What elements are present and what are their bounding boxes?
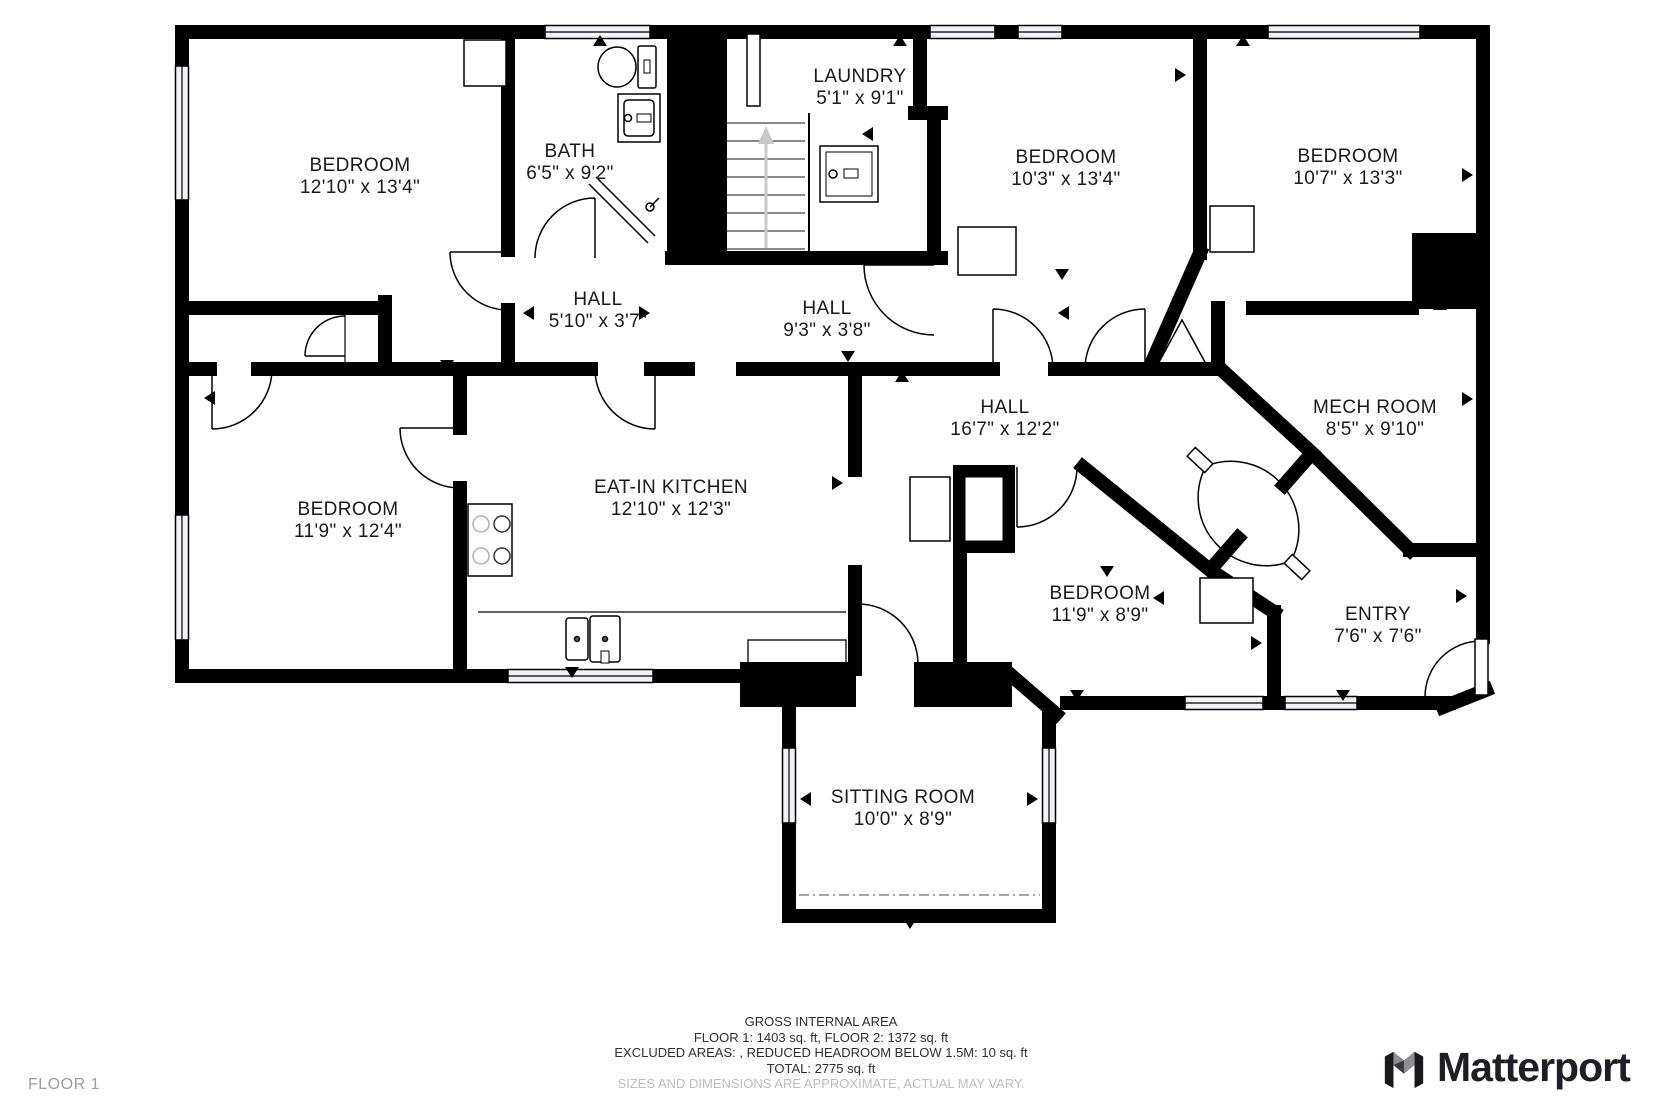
floor-areas: FLOOR 1: 1403 sq. ft, FLOOR 2: 1372 sq. …	[614, 1030, 1027, 1046]
room-name: HALL	[950, 397, 1059, 419]
area-summary: GROSS INTERNAL AREA FLOOR 1: 1403 sq. ft…	[614, 1014, 1027, 1092]
room-label-entry: ENTRY7'6" x 7'6"	[1334, 604, 1421, 648]
room-dims: 12'10" x 13'4"	[300, 177, 420, 199]
room-dims: 10'0" x 8'9"	[831, 809, 975, 831]
room-name: BEDROOM	[1293, 146, 1402, 168]
room-label-bedroom-2: BEDROOM11'9" x 12'4"	[294, 499, 402, 543]
room-dims: 6'5" x 9'2"	[526, 163, 613, 185]
kitchen-counter	[466, 576, 846, 668]
excluded-areas: EXCLUDED AREAS: , REDUCED HEADROOM BELOW…	[614, 1045, 1027, 1061]
door-entry-leaf	[1475, 639, 1488, 695]
room-label-bedroom-1: BEDROOM12'10" x 13'4"	[300, 155, 420, 199]
hall-cabinet-box	[910, 477, 950, 541]
room-label-bath: BATH6'5" x 9'2"	[526, 141, 613, 185]
door-bedroom-2	[212, 369, 272, 429]
room-name: LAUNDRY	[813, 66, 906, 88]
floor-indicator: FLOOR 1	[28, 1076, 100, 1094]
closet-chase-inner	[965, 477, 1003, 541]
vestibule-wall-right	[914, 662, 1012, 707]
closet-box-bed3	[958, 227, 1016, 275]
door-bedroom-4	[1017, 467, 1077, 527]
room-name: EAT-IN KITCHEN	[594, 477, 748, 499]
room-name: BATH	[526, 141, 613, 163]
door-jamb	[1187, 447, 1213, 472]
room-dims: 12'10" x 12'3"	[594, 499, 748, 521]
interior-walls	[182, 32, 1483, 703]
room-name: ENTRY	[1334, 604, 1421, 626]
staircase	[727, 34, 809, 258]
door-sitting-room	[858, 604, 918, 664]
room-dims: 10'3" x 13'4"	[1011, 169, 1120, 191]
room-name: HALL	[783, 298, 870, 320]
floorplan-drawing	[0, 0, 1680, 1120]
room-label-hall-a: HALL5'10" x 3'7"	[549, 289, 647, 333]
pocket-door	[747, 34, 760, 106]
matterport-wordmark: Matterport	[1437, 1044, 1630, 1091]
door-hall-b	[864, 265, 934, 335]
room-name: SITTING ROOM	[831, 787, 975, 809]
matterport-logo-icon	[1381, 1045, 1427, 1091]
room-dims: 11'9" x 8'9"	[1050, 605, 1151, 627]
washer-icon	[820, 146, 878, 202]
room-label-hall-b: HALL9'3" x 3'8"	[783, 298, 870, 342]
floorplan-page: BEDROOM12'10" x 13'4" BATH6'5" x 9'2" LA…	[0, 0, 1680, 1120]
room-label-sitting-room: SITTING ROOM10'0" x 8'9"	[831, 787, 975, 831]
door-kitchen-top	[595, 369, 655, 429]
stair-up-arrowhead	[758, 126, 774, 144]
door-closet	[1085, 309, 1145, 369]
total-area: TOTAL: 2775 sq. ft	[614, 1061, 1027, 1077]
room-name: BEDROOM	[1011, 147, 1120, 169]
entry-cabinet-box	[1200, 578, 1253, 623]
matterport-logo: Matterport	[1381, 1044, 1630, 1091]
door-bedroom-3	[993, 309, 1053, 369]
room-label-bedroom-4: BEDROOM10'7" x 13'3"	[1293, 146, 1402, 190]
door-bedroom-1	[450, 252, 508, 310]
kitchen-sink-icon	[566, 616, 620, 663]
room-label-laundry: LAUNDRY5'1" x 9'1"	[813, 66, 906, 110]
room-label-bedroom-5: BEDROOM11'9" x 8'9"	[1050, 583, 1151, 627]
room-dims: 5'1" x 9'1"	[813, 88, 906, 110]
bath-stair-wall	[667, 25, 727, 262]
dresser-box-bed4	[1210, 206, 1254, 252]
shower-icon	[589, 177, 659, 243]
room-dims: 16'7" x 12'2"	[950, 419, 1059, 441]
bathroom-sink-icon	[618, 94, 660, 142]
disclaimer: SIZES AND DIMENSIONS ARE APPROXIMATE, AC…	[614, 1076, 1027, 1092]
room-name: MECH ROOM	[1313, 397, 1437, 419]
room-label-bedroom-3: BEDROOM10'3" x 13'4"	[1011, 147, 1120, 191]
room-dims: 7'6" x 7'6"	[1334, 626, 1421, 648]
door-bath	[535, 198, 595, 258]
room-dims: 11'9" x 12'4"	[294, 521, 402, 543]
room-name: BEDROOM	[300, 155, 420, 177]
door-jamb	[1284, 554, 1310, 579]
gross-internal-area-title: GROSS INTERNAL AREA	[614, 1014, 1027, 1030]
room-label-mech-room: MECH ROOM8'5" x 9'10"	[1313, 397, 1437, 441]
room-dims: 10'7" x 13'3"	[1293, 168, 1402, 190]
toilet-icon	[598, 46, 656, 88]
room-label-kitchen: EAT-IN KITCHEN12'10" x 12'3"	[594, 477, 748, 521]
vestibule-wall-left	[740, 662, 856, 707]
chimney	[1412, 233, 1483, 309]
wardrobe-box	[464, 40, 506, 86]
door-kitchen-bedroom	[400, 428, 460, 488]
stove-icon	[468, 504, 512, 576]
room-dims: 8'5" x 9'10"	[1313, 419, 1437, 441]
room-name: BEDROOM	[294, 499, 402, 521]
room-dims: 5'10" x 3'7"	[549, 311, 647, 333]
door-closet-tl	[305, 316, 345, 356]
room-label-hall-c: HALL16'7" x 12'2"	[950, 397, 1059, 441]
room-name: HALL	[549, 289, 647, 311]
room-name: BEDROOM	[1050, 583, 1151, 605]
room-dims: 9'3" x 3'8"	[783, 320, 870, 342]
